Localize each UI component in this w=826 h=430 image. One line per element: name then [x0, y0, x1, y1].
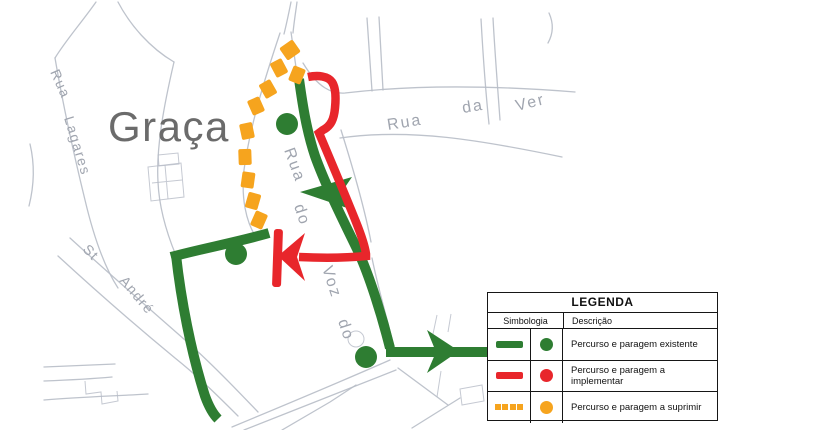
street-label-andre-1: St [80, 241, 103, 264]
route-implement-terminus-bar [272, 229, 283, 287]
street-label-ver-2: da [461, 97, 485, 117]
suppress-dash [279, 39, 301, 60]
stop-existing-dot [225, 243, 247, 265]
legend-col-desc: Descrição [563, 313, 717, 328]
street-label-andre-2: André [117, 273, 158, 318]
route-implement-path [299, 76, 366, 258]
legend-col-symbol: Simbologia [488, 316, 563, 326]
legend-desc-suppress: Percurso e paragem a suprimir [563, 392, 717, 423]
street-label-voz-1: Rua [280, 146, 308, 185]
suppress-dash [245, 192, 262, 211]
street-label-ver-1: Rua [386, 112, 424, 134]
legend-header: Simbologia Descrição [488, 313, 717, 329]
suppress-dash [238, 149, 252, 165]
route-suppress [238, 39, 306, 230]
legend-line-implement [496, 372, 523, 379]
legend-row-suppress: Percurso e paragem a suprimir [488, 392, 717, 423]
suppress-dash [270, 58, 289, 78]
street-label-voz-3: Voz [318, 264, 344, 300]
legend: LEGENDA Simbologia Descrição Percurso e … [487, 292, 718, 421]
legend-row-implement: Percurso e paragem a implementar [488, 361, 717, 393]
suppress-dash [247, 96, 265, 116]
area-label-graca: Graça [108, 103, 230, 150]
suppress-dash [240, 171, 255, 189]
legend-dot-existing [540, 338, 553, 351]
street-label-rua-lagares-2: Lagares [61, 114, 94, 177]
street-label-voz-4: do [334, 317, 357, 343]
legend-line-existing [496, 341, 523, 348]
stop-existing-dot [355, 346, 377, 368]
route-implement [272, 76, 366, 287]
legend-desc-existing: Percurso e paragem existente [563, 329, 717, 360]
suppress-dash [250, 210, 268, 230]
route-existing-diagonal [299, 79, 390, 348]
legend-title: LEGENDA [488, 293, 717, 313]
route-existing-west [171, 233, 269, 257]
street-label-ver-3: Ver [514, 91, 547, 115]
stop-existing-dot [276, 113, 298, 135]
legend-desc-implement: Percurso e paragem a implementar [563, 361, 717, 392]
legend-row-existing: Percurso e paragem existente [488, 329, 717, 361]
street-label-voz-2: do [290, 202, 313, 228]
street-label-rua-lagares-1: Rua [47, 67, 74, 101]
legend-dot-implement [540, 369, 553, 382]
legend-dot-suppress [540, 401, 553, 414]
suppress-dash [258, 79, 277, 99]
map-page: Graça Rua Lagares Rua da Ver Rua do Voz … [0, 0, 826, 430]
legend-line-suppress [495, 404, 524, 410]
